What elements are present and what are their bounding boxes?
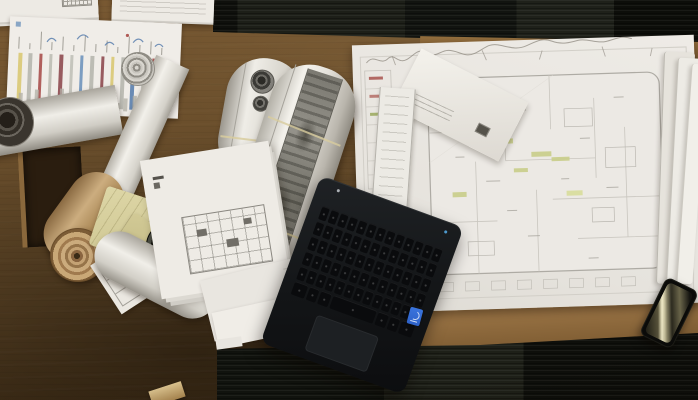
- intel-sticker: [406, 307, 423, 327]
- logo-mark: [153, 176, 164, 181]
- logo-mark: [153, 182, 160, 189]
- fine-print-rows: [120, 0, 207, 17]
- architect-desk-photo: [0, 0, 698, 400]
- power-led: [444, 230, 448, 234]
- mini-floor-plan: [181, 204, 273, 274]
- stamp: [475, 123, 491, 138]
- address-lines: [410, 94, 454, 124]
- paper-stack: [111, 0, 214, 23]
- mini-table-print: [61, 0, 92, 7]
- webcam-icon: [336, 189, 340, 193]
- roll-spiral-end: [121, 52, 155, 86]
